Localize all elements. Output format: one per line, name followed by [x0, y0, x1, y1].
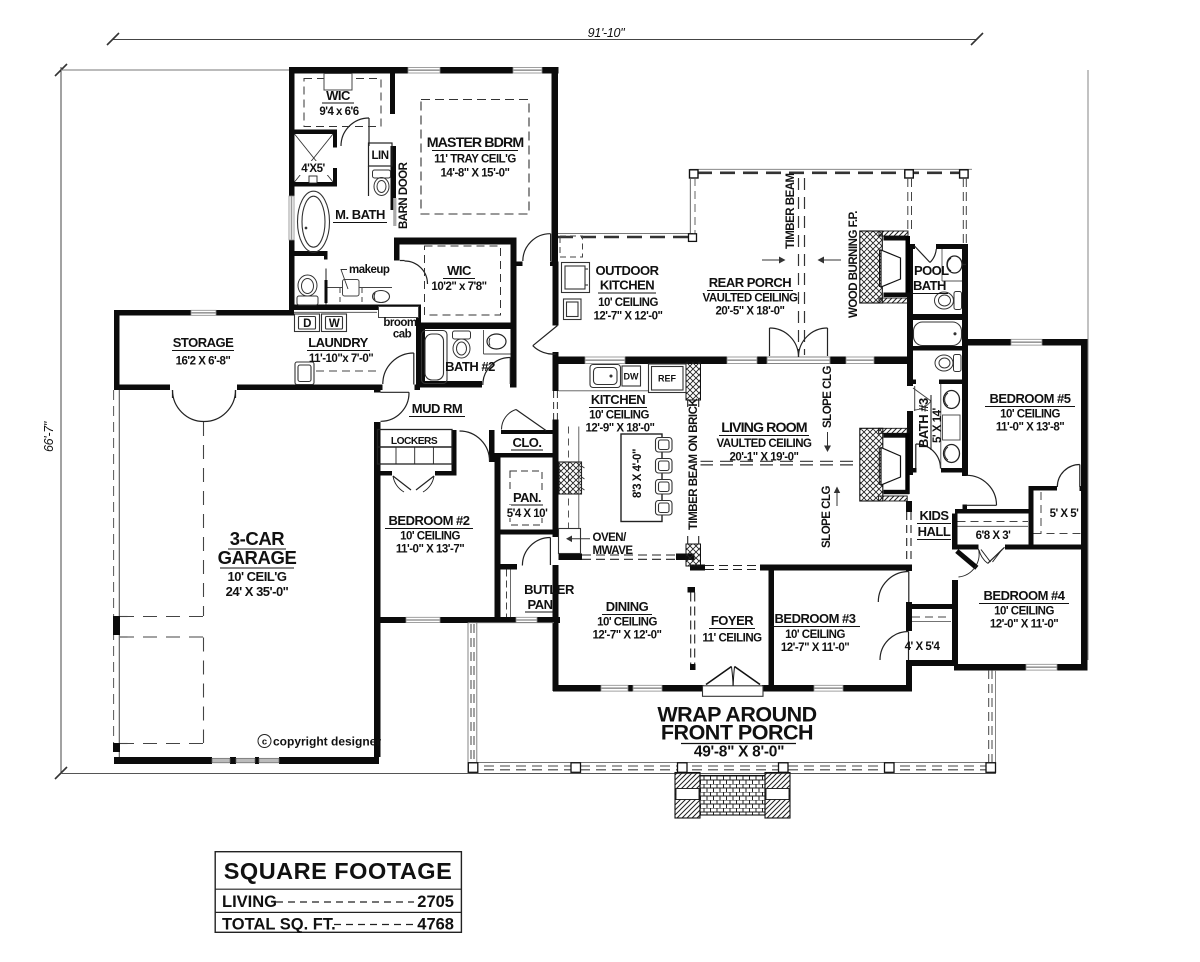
- svg-text:BEDROOM #5: BEDROOM #5: [990, 391, 1071, 406]
- svg-text:D: D: [303, 318, 311, 330]
- svg-text:4' X 5'4: 4' X 5'4: [905, 641, 941, 653]
- svg-text:FRONT PORCH: FRONT PORCH: [661, 721, 813, 745]
- svg-text:49'-8" X 8'-0": 49'-8" X 8'-0": [694, 744, 784, 761]
- svg-text:16'2 X 6'-8": 16'2 X 6'-8": [176, 356, 231, 368]
- svg-text:PAN.: PAN.: [513, 490, 541, 505]
- svg-text:10' CEIL'G: 10' CEIL'G: [228, 569, 287, 584]
- svg-text:10' CEILING: 10' CEILING: [589, 410, 649, 422]
- svg-text:14'-8" X 15'-0": 14'-8" X 15'-0": [441, 168, 510, 180]
- svg-text:FOYER: FOYER: [711, 613, 754, 628]
- svg-text:BUTLER: BUTLER: [524, 582, 575, 597]
- svg-text:c: c: [262, 737, 267, 748]
- svg-text:11'-0" X 13'-8": 11'-0" X 13'-8": [996, 422, 1064, 434]
- svg-text:4768: 4768: [417, 916, 454, 934]
- svg-text:LAUNDRY: LAUNDRY: [308, 335, 368, 350]
- svg-text:TIMBER BEAM ON BRICK: TIMBER BEAM ON BRICK: [688, 398, 700, 530]
- svg-text:KITCHEN: KITCHEN: [600, 278, 654, 293]
- svg-text:11' TRAY CEIL'G: 11' TRAY CEIL'G: [434, 154, 516, 166]
- svg-text:5'4 X 10': 5'4 X 10': [507, 508, 548, 520]
- svg-text:WIC: WIC: [447, 263, 472, 278]
- svg-text:CLO.: CLO.: [512, 435, 541, 450]
- svg-text:12'-7" X 12'-0": 12'-7" X 12'-0": [594, 311, 663, 323]
- svg-text:KITCHEN: KITCHEN: [591, 392, 645, 407]
- svg-text:11'-10"x 7'-0": 11'-10"x 7'-0": [309, 353, 373, 365]
- svg-text:GARAGE: GARAGE: [218, 547, 297, 568]
- svg-text:11' CEILING: 11' CEILING: [702, 633, 762, 645]
- svg-text:broom: broom: [383, 317, 417, 329]
- svg-text:DW: DW: [624, 372, 639, 382]
- svg-text:24' X 35'-0": 24' X 35'-0": [226, 584, 289, 599]
- svg-text:8'3 X 4'-0": 8'3 X 4'-0": [632, 449, 644, 498]
- svg-text:6'8 X 3': 6'8 X 3': [976, 530, 1011, 542]
- svg-text:10' CEILING: 10' CEILING: [785, 629, 845, 641]
- svg-text:PAN: PAN: [528, 597, 553, 612]
- svg-text:12'-7" X 11'-0": 12'-7" X 11'-0": [781, 642, 849, 654]
- svg-text:5' X 5': 5' X 5': [1050, 508, 1080, 520]
- svg-text:11'-0" X 13'-7": 11'-0" X 13'-7": [396, 544, 464, 556]
- svg-text:WIC: WIC: [326, 88, 351, 103]
- svg-text:HALL: HALL: [918, 524, 951, 539]
- svg-text:OUTDOOR: OUTDOOR: [596, 263, 660, 278]
- svg-text:66'-7": 66'-7": [42, 421, 56, 452]
- svg-text:10' CEILING: 10' CEILING: [598, 297, 658, 309]
- svg-text:makeup: makeup: [349, 264, 390, 276]
- svg-text:BATH #3: BATH #3: [916, 398, 931, 448]
- svg-text:LOCKERS: LOCKERS: [391, 436, 438, 447]
- svg-text:10' CEILING: 10' CEILING: [1000, 409, 1060, 421]
- svg-text:MWAVE: MWAVE: [593, 545, 634, 557]
- svg-text:cab: cab: [393, 329, 412, 341]
- svg-text:VAULTED CEILING: VAULTED CEILING: [703, 293, 798, 305]
- svg-text:copyright designer: copyright designer: [273, 735, 381, 749]
- svg-text:SQUARE FOOTAGE: SQUARE FOOTAGE: [224, 858, 453, 884]
- svg-text:91'-10": 91'-10": [588, 26, 626, 40]
- svg-text:LIVING ROOM: LIVING ROOM: [721, 420, 807, 436]
- svg-text:LIVING: LIVING: [222, 893, 277, 911]
- svg-text:5' X 14': 5' X 14': [932, 408, 944, 443]
- svg-text:BEDROOM #4: BEDROOM #4: [984, 588, 1066, 603]
- svg-text:12'-9" X 18'-0": 12'-9" X 18'-0": [586, 423, 655, 435]
- svg-text:OVEN/: OVEN/: [593, 532, 628, 544]
- svg-text:VAULTED CEILING: VAULTED CEILING: [717, 438, 812, 450]
- svg-text:TIMBER BEAM: TIMBER BEAM: [785, 173, 797, 249]
- svg-text:M. BATH: M. BATH: [335, 207, 385, 222]
- svg-text:POOL: POOL: [914, 263, 949, 278]
- svg-text:STORAGE: STORAGE: [173, 335, 234, 350]
- svg-text:10' CEILING: 10' CEILING: [994, 606, 1054, 618]
- svg-text:BEDROOM #3: BEDROOM #3: [775, 611, 856, 626]
- svg-text:REF: REF: [658, 374, 677, 384]
- svg-text:20'-1" X 19'-0": 20'-1" X 19'-0": [730, 452, 799, 464]
- svg-text:10' CEILING: 10' CEILING: [400, 531, 460, 543]
- svg-text:2705: 2705: [417, 893, 454, 911]
- svg-text:12'-0" X 11'-0": 12'-0" X 11'-0": [990, 619, 1058, 631]
- svg-text:MUD RM: MUD RM: [412, 401, 462, 416]
- svg-text:MASTER BDRM: MASTER BDRM: [427, 135, 524, 151]
- svg-text:BARN DOOR: BARN DOOR: [398, 161, 410, 229]
- svg-text:BATH: BATH: [913, 278, 946, 293]
- svg-text:WOOD BURNING F.P.: WOOD BURNING F.P.: [848, 211, 860, 318]
- svg-text:KIDS: KIDS: [919, 508, 949, 523]
- svg-text:10' CEILING: 10' CEILING: [597, 617, 657, 629]
- svg-text:DINING: DINING: [606, 599, 649, 614]
- svg-text:W: W: [329, 318, 340, 330]
- svg-text:12'-7" X 12'-0": 12'-7" X 12'-0": [593, 630, 662, 642]
- svg-text:20'-5" X 18'-0": 20'-5" X 18'-0": [716, 306, 785, 318]
- svg-text:3-CAR: 3-CAR: [230, 528, 285, 549]
- svg-text:BEDROOM #2: BEDROOM #2: [389, 513, 470, 528]
- svg-text:SLOPE CLG: SLOPE CLG: [822, 365, 834, 428]
- svg-text:TOTAL SQ. FT.: TOTAL SQ. FT.: [222, 916, 336, 934]
- svg-text:4'X5': 4'X5': [301, 163, 325, 175]
- svg-text:9'4 x 6'6: 9'4 x 6'6: [319, 106, 358, 118]
- svg-text:BATH #2: BATH #2: [445, 359, 495, 374]
- svg-text:SLOPE CLG: SLOPE CLG: [821, 485, 833, 548]
- svg-text:10'2" x 7'8": 10'2" x 7'8": [431, 281, 486, 293]
- svg-text:REAR PORCH: REAR PORCH: [709, 275, 792, 290]
- svg-text:LIN: LIN: [371, 150, 388, 162]
